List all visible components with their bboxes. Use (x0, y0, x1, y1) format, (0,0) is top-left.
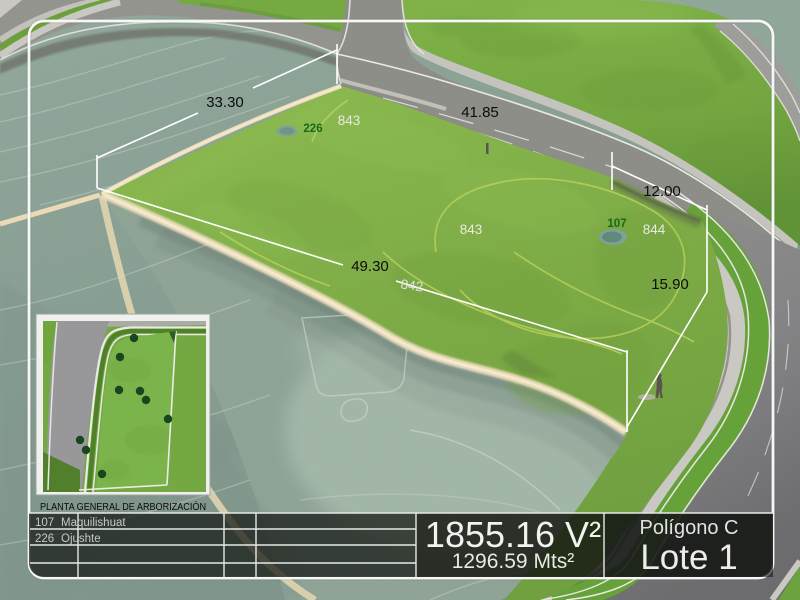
svg-text:33.30: 33.30 (206, 94, 244, 111)
svg-text:Polígono C: Polígono C (640, 517, 739, 539)
svg-text:843: 843 (338, 113, 361, 128)
svg-text:842: 842 (400, 277, 424, 295)
svg-text:49.30: 49.30 (351, 258, 389, 275)
svg-text:226: 226 (303, 123, 322, 135)
svg-text:1296.59 Mts²: 1296.59 Mts² (452, 550, 575, 573)
svg-text:107: 107 (607, 218, 626, 230)
svg-text:107: 107 (35, 517, 54, 529)
svg-text:41.85: 41.85 (461, 104, 499, 121)
svg-text:15.90: 15.90 (651, 276, 689, 293)
svg-text:Maquilishuat: Maquilishuat (61, 517, 126, 529)
svg-text:Lote 1: Lote 1 (640, 538, 737, 577)
svg-text:12.00: 12.00 (643, 183, 681, 200)
svg-text:Ojushte: Ojushte (61, 533, 101, 545)
svg-text:226: 226 (35, 533, 54, 545)
svg-text:1855.16 V²: 1855.16 V² (425, 514, 601, 555)
svg-text:844: 844 (643, 222, 666, 237)
svg-text:843: 843 (460, 222, 483, 237)
svg-text:PLANTA GENERAL DE ARBORIZACIÓN: PLANTA GENERAL DE ARBORIZACIÓN (40, 500, 206, 513)
